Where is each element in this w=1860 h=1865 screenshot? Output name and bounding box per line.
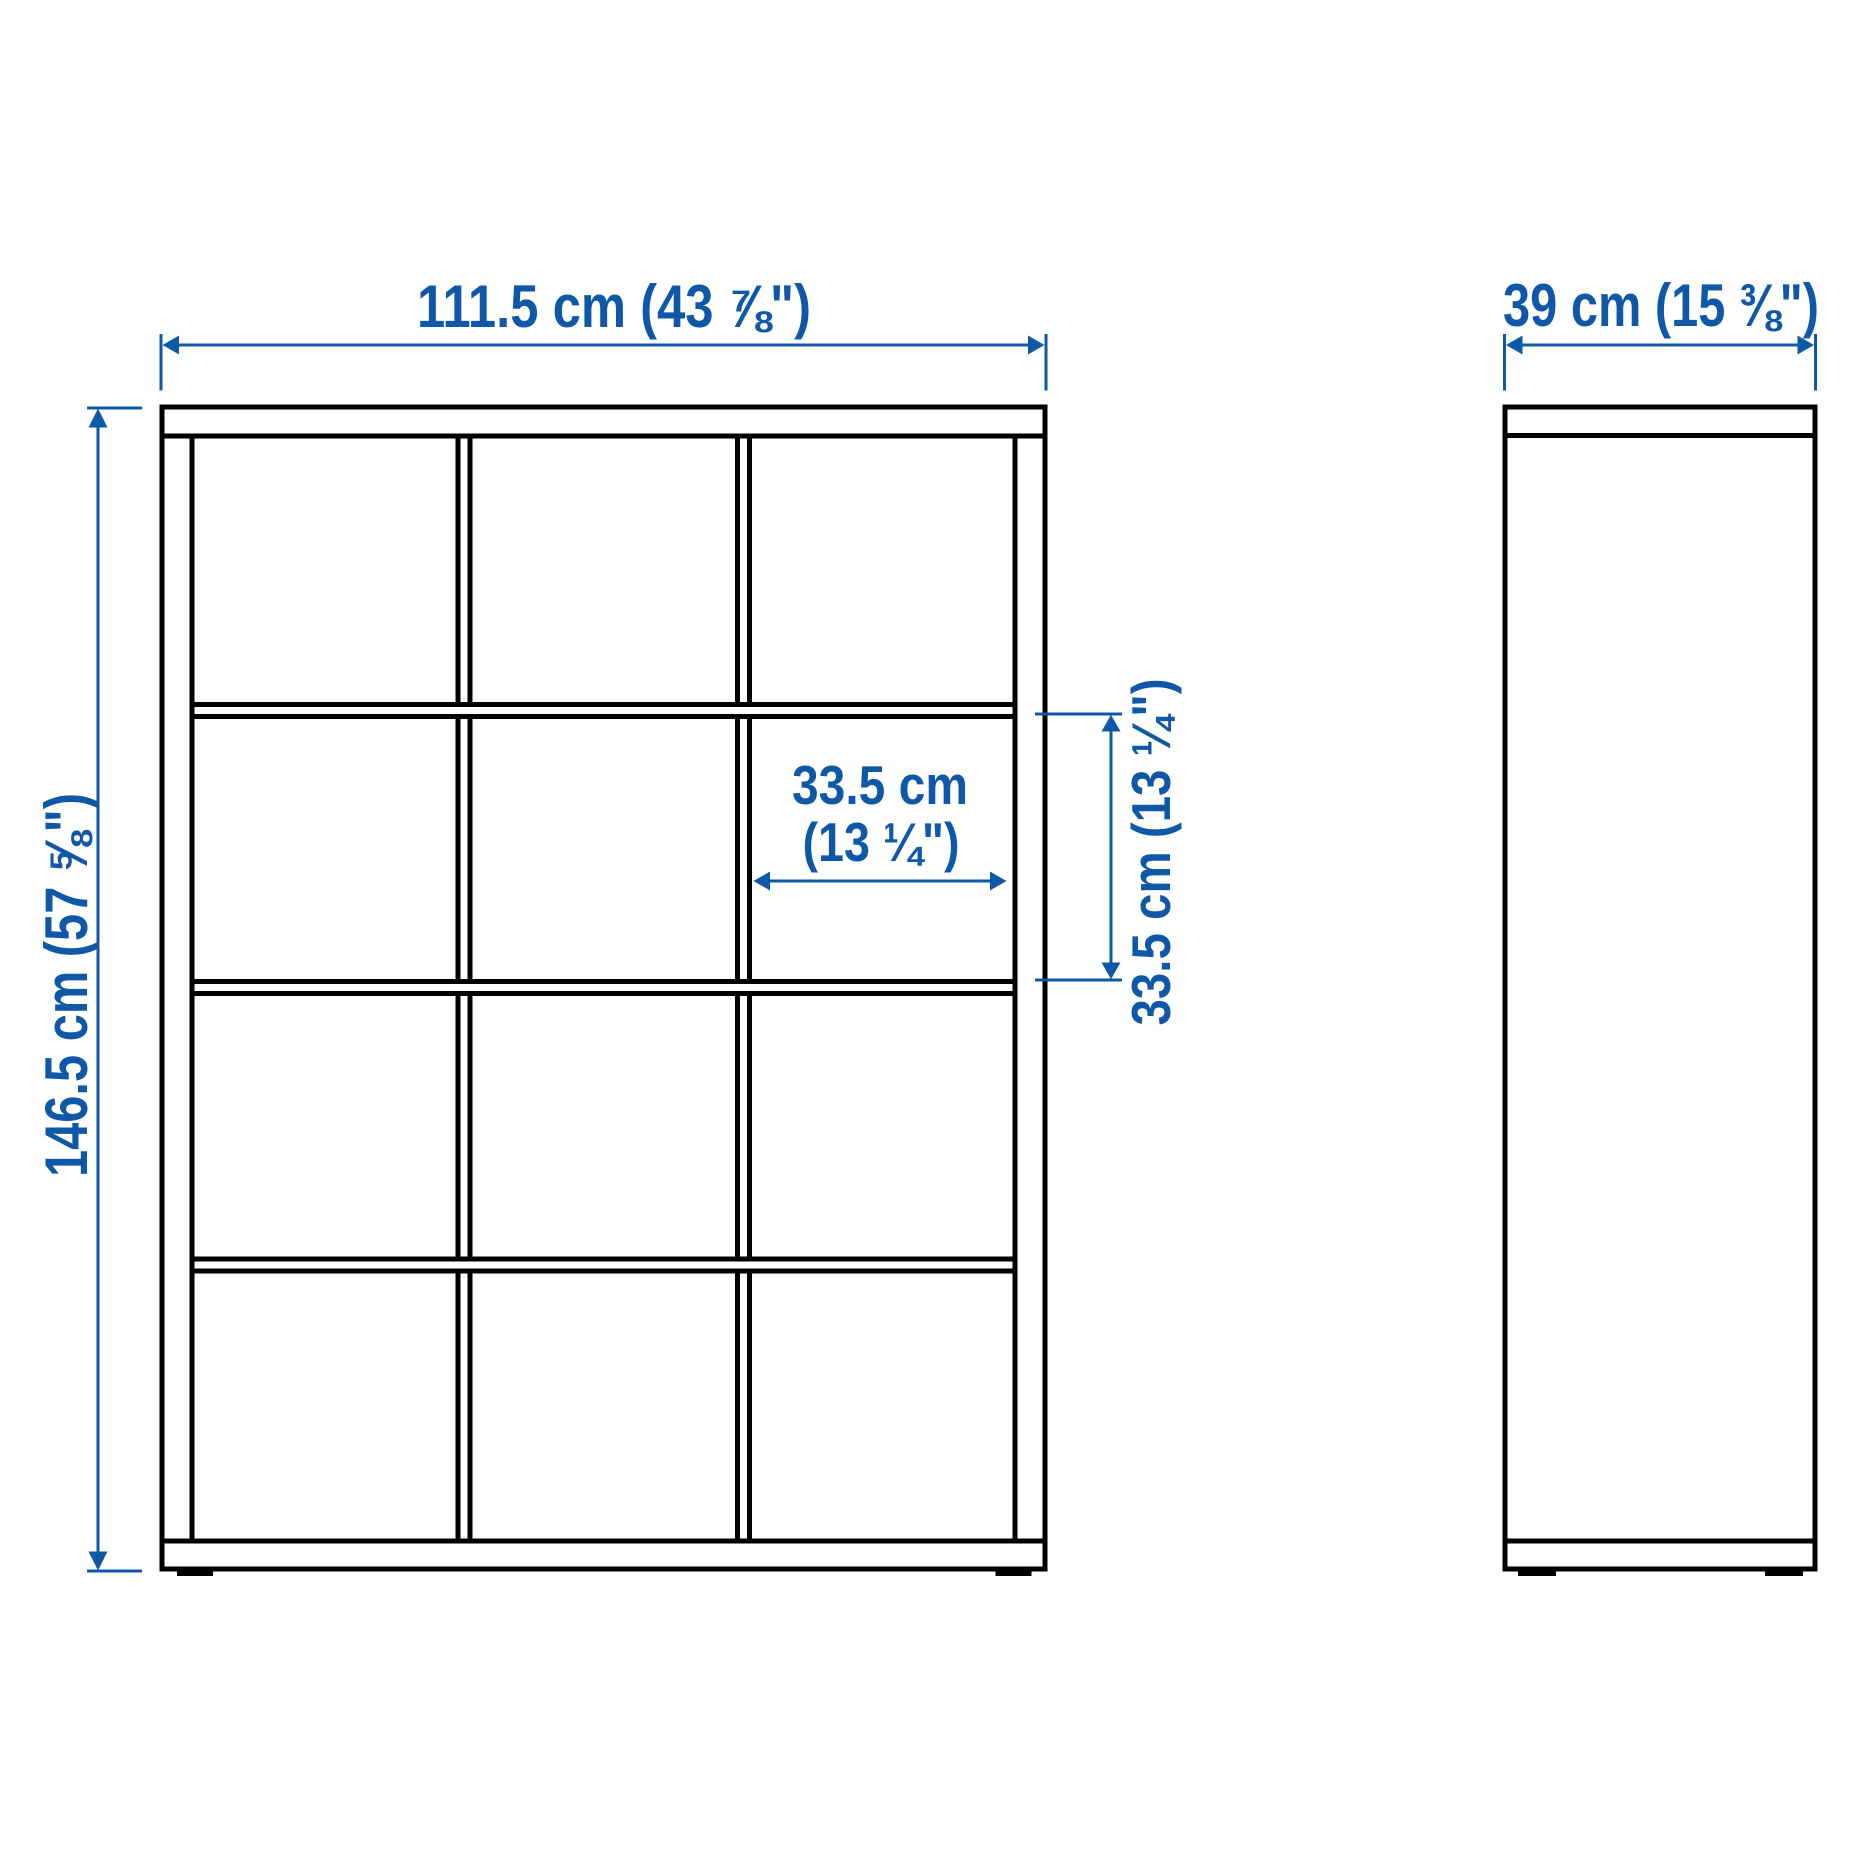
svg-text:111.5 cm (43 ⅞"): 111.5 cm (43 ⅞") [417,273,811,340]
svg-text:33.5 cm: 33.5 cm [792,754,968,816]
svg-text:(13 ¼"): (13 ¼") [803,811,960,873]
svg-text:33.5 cm (13 ¼"): 33.5 cm (13 ¼") [1120,679,1182,1026]
svg-text:39 cm (15 ⅜"): 39 cm (15 ⅜") [1503,272,1819,339]
svg-text:146.5 cm (57 ⅝"): 146.5 cm (57 ⅝") [33,793,100,1177]
